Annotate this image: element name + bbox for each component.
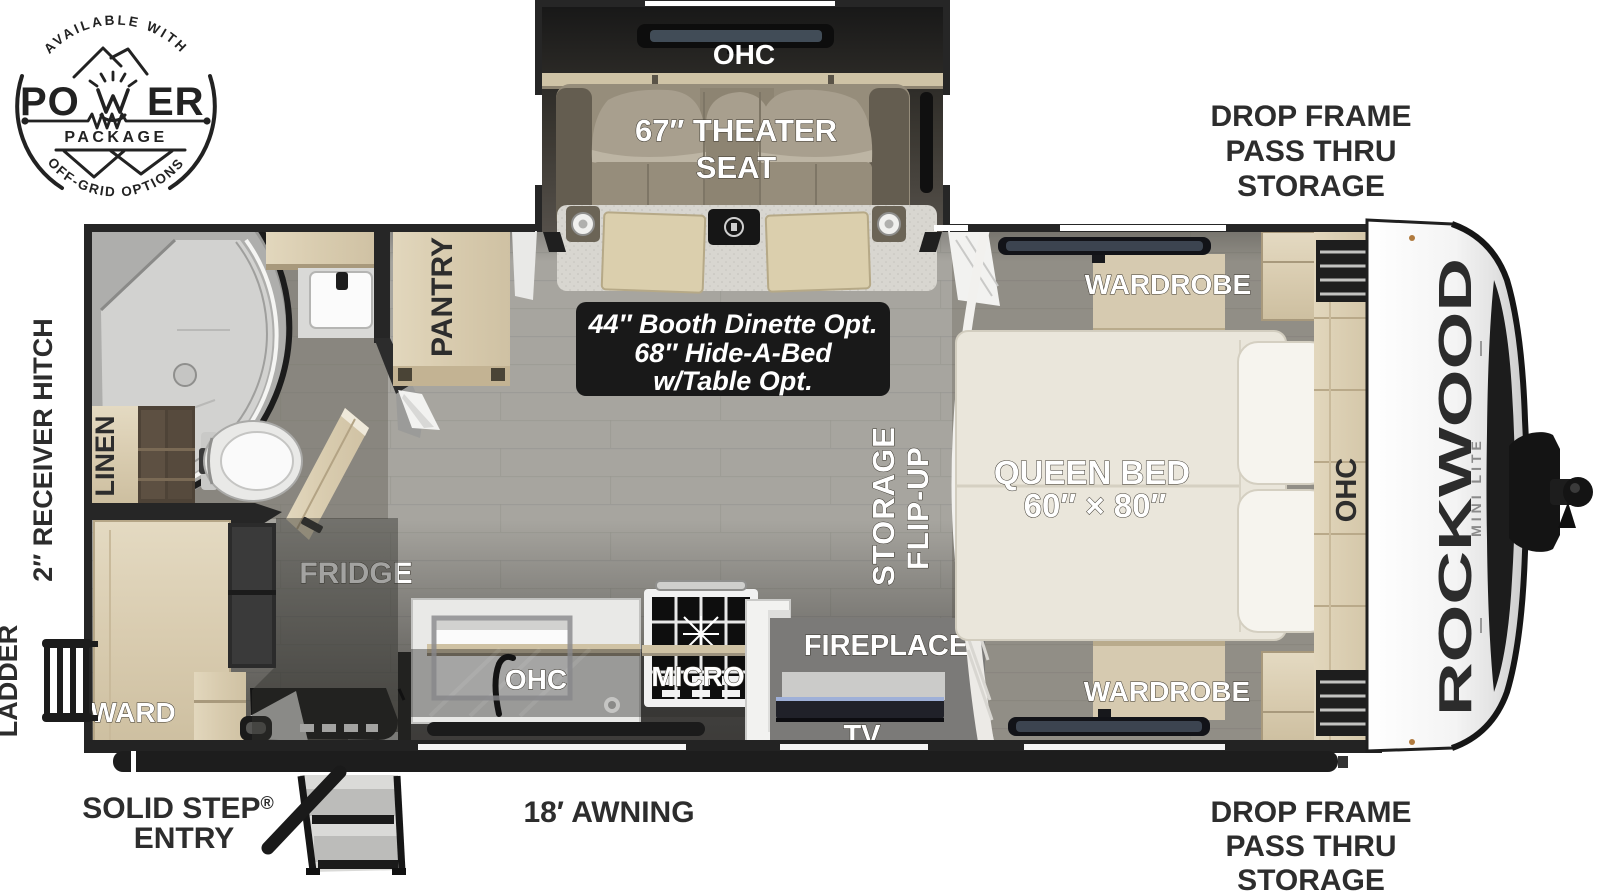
svg-text:STORAGE: STORAGE [866,426,901,586]
svg-text:OHC: OHC [713,39,775,70]
svg-text:LINEN: LINEN [90,416,120,497]
svg-text:18′ AWNING: 18′ AWNING [523,796,694,829]
svg-text:ER: ER [147,80,205,124]
svg-text:SOLID STEP®: SOLID STEP® [82,792,274,825]
svg-text:OHC: OHC [505,664,567,695]
svg-text:WARD: WARD [90,697,176,728]
svg-text:WARDROBE: WARDROBE [1085,269,1251,300]
svg-text:WARDROBE: WARDROBE [1084,676,1250,707]
svg-text:MINI LITE: MINI LITE [1468,437,1484,537]
svg-text:FIREPLACE: FIREPLACE [804,630,968,662]
svg-text:PASS THRU: PASS THRU [1225,135,1396,168]
svg-text:DROP FRAME: DROP FRAME [1210,100,1411,133]
svg-text:DROP FRAME: DROP FRAME [1210,796,1411,829]
svg-text:PASS THRU: PASS THRU [1225,830,1396,863]
svg-text:67″ THEATER: 67″ THEATER [635,113,837,148]
svg-text:ENTRY: ENTRY [134,822,235,855]
svg-text:w/Table Opt.: w/Table Opt. [653,366,813,396]
svg-text:FLIP-UP: FLIP-UP [902,446,935,570]
svg-text:OHC: OHC [1331,458,1363,523]
svg-text:SEAT: SEAT [696,150,776,185]
svg-text:PANTRY: PANTRY [426,237,459,357]
svg-text:STORAGE: STORAGE [1237,170,1385,203]
svg-text:QUEEN BED: QUEEN BED [994,454,1190,491]
svg-text:PACKAGE: PACKAGE [64,129,167,146]
svg-text:44″ Booth Dinette Opt.: 44″ Booth Dinette Opt. [588,309,878,339]
svg-text:60″ × 80″: 60″ × 80″ [1024,487,1167,524]
svg-text:68″ Hide-A-Bed: 68″ Hide-A-Bed [634,338,832,368]
svg-text:MICRO: MICRO [651,661,744,692]
svg-text:LADDER: LADDER [0,625,23,738]
svg-text:2″ RECEIVER HITCH: 2″ RECEIVER HITCH [28,318,58,581]
svg-text:PO: PO [20,80,80,124]
svg-text:STORAGE: STORAGE [1237,864,1385,892]
